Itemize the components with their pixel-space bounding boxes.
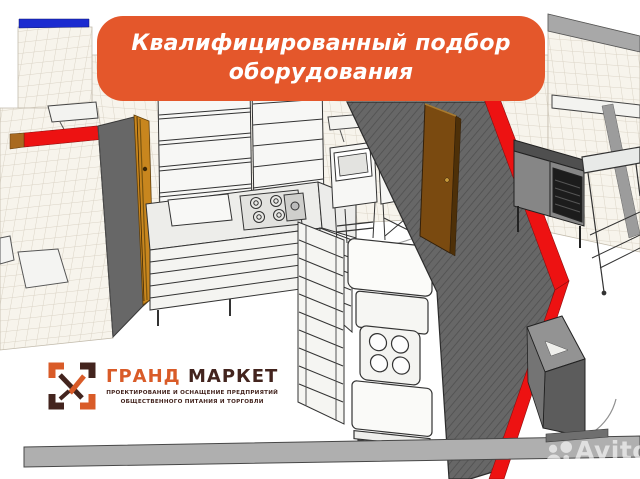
logo-tagline-line1: ПРОЕКТИРОВАНИЕ И ОСНАЩЕНИЕ ПРЕДПРИЯТИЙ — [106, 389, 278, 397]
company-logo: ГРАНД МАРКЕТ ПРОЕКТИРОВАНИЕ И ОСНАЩЕНИЕ … — [48, 362, 278, 410]
grand-market-logo-icon — [48, 362, 96, 410]
gas-range — [240, 190, 306, 230]
banner-line-2: оборудования — [229, 59, 413, 87]
logo-tagline: ПРОЕКТИРОВАНИЕ И ОСНАЩЕНИЕ ПРЕДПРИЯТИЙ О… — [106, 389, 278, 406]
brown-door — [420, 104, 461, 256]
storage-rack — [298, 222, 344, 424]
door-handle — [143, 167, 147, 171]
left-tiled-wall-upper — [18, 19, 92, 108]
logo-title-part2: МАРКЕТ — [188, 366, 278, 387]
logo-title: ГРАНД МАРКЕТ — [106, 366, 278, 387]
corner-cabinet — [527, 316, 585, 437]
blue-wall-band — [19, 19, 89, 28]
island-counter — [146, 182, 322, 326]
banner-line-1: Квалифицированный подбор — [131, 30, 510, 58]
logo-title-part1: ГРАНД — [106, 366, 181, 387]
combi-oven — [348, 238, 432, 453]
doorway-top-left — [10, 133, 24, 149]
avito-circles-icon — [544, 440, 572, 474]
knob-panel — [360, 325, 420, 385]
avito-watermark: Avito — [544, 438, 640, 474]
ad-image: Квалифицированный подбор оборудования ГР… — [0, 0, 640, 479]
avito-watermark-text: Avito — [575, 438, 640, 463]
logo-tagline-line2: ОБЩЕСТВЕННОГО ПИТАНИЯ И ТОРГОВЛИ — [106, 398, 278, 406]
logo-text: ГРАНД МАРКЕТ ПРОЕКТИРОВАНИЕ И ОСНАЩЕНИЕ … — [106, 366, 278, 406]
banner: Квалифицированный подбор оборудования — [97, 16, 545, 101]
cutting-board — [168, 194, 232, 226]
door-handle — [445, 178, 449, 182]
